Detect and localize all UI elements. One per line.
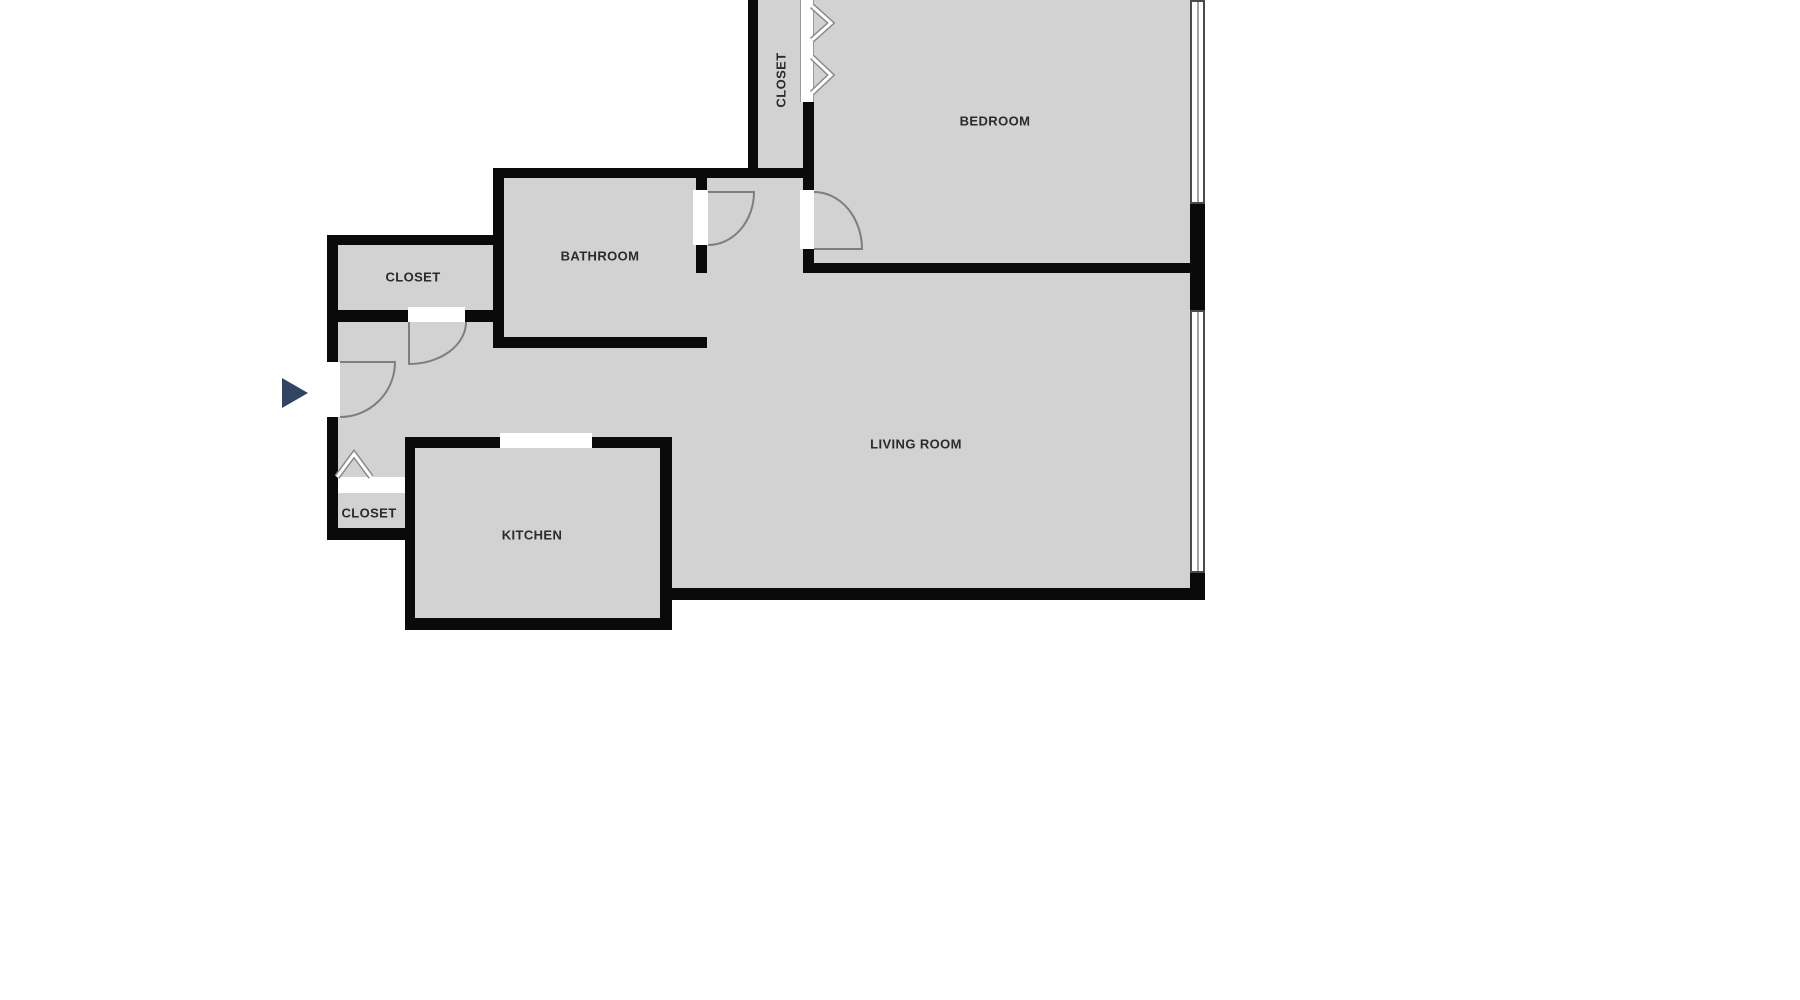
- room-fill-hall-column: [707, 178, 814, 273]
- window-bedroom: [1190, 0, 1205, 204]
- wall-kitchen-right: [660, 437, 672, 630]
- room-label-bathroom: BATHROOM: [561, 249, 640, 264]
- wall-bedroom-bottom: [803, 263, 1205, 273]
- room-label-kitchen: KITCHEN: [502, 528, 563, 543]
- wall-bathroom-right-lower: [696, 245, 707, 273]
- wall-kitchen-top-right: [592, 437, 672, 448]
- wall-bathroom-bottom: [493, 337, 707, 348]
- door-opening-closet-bottom: [338, 477, 405, 493]
- window-living-room: [1190, 310, 1205, 573]
- wall-right-mid: [1190, 204, 1205, 310]
- door-opening-entry: [325, 362, 340, 417]
- floorplan-canvas: CLOSET BEDROOM BATHROOM CLOSET LIVING RO…: [0, 0, 1800, 1000]
- wall-closet-left-top: [327, 235, 504, 245]
- room-label-closet-top: CLOSET: [774, 52, 789, 107]
- entry-arrow-icon: [282, 378, 308, 408]
- wall-bathroom-left: [493, 168, 504, 348]
- door-opening-bedroom: [800, 190, 814, 249]
- room-label-closet-left: CLOSET: [385, 270, 440, 285]
- door-opening-bathroom: [693, 190, 708, 245]
- wall-closet-left-bottom-a: [327, 310, 408, 322]
- wall-bathroom-top: [493, 168, 814, 178]
- door-opening-closet-left: [408, 307, 465, 322]
- wall-closet-bottom-bottom: [327, 528, 415, 540]
- wall-bathroom-right-upper: [696, 178, 707, 190]
- wall-outer-left-upper: [327, 235, 338, 362]
- room-label-living-room: LIVING ROOM: [870, 437, 962, 452]
- door-opening-kitchen: [500, 433, 592, 448]
- wall-living-room-bottom: [660, 588, 1205, 600]
- room-label-bedroom: BEDROOM: [960, 114, 1031, 129]
- room-fill-bedroom: [803, 0, 1192, 273]
- wall-outer-left-lower: [327, 417, 338, 540]
- wall-closet-top-left: [748, 0, 758, 178]
- wall-kitchen-top-left: [405, 437, 500, 448]
- room-label-closet-bottom: CLOSET: [341, 506, 396, 521]
- wall-closet-left-bottom-b: [465, 310, 493, 322]
- door-opening-closet-top-sliding: [800, 0, 814, 102]
- wall-kitchen-bottom: [405, 618, 672, 630]
- room-fill-living-room: [672, 263, 1192, 600]
